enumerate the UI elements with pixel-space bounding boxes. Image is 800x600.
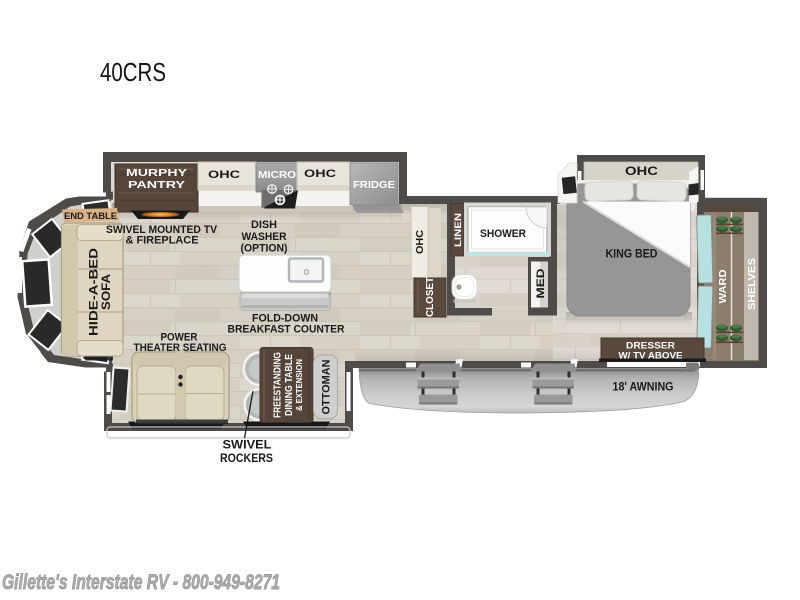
svg-text:END TABLE: END TABLE [64, 211, 117, 222]
svg-text:OHC: OHC [415, 230, 426, 254]
svg-text:SWIVEL: SWIVEL [223, 440, 272, 452]
svg-text:W/ TV ABOVE: W/ TV ABOVE [619, 351, 683, 362]
svg-text:LINEN: LINEN [453, 213, 464, 247]
svg-text:CLOSET: CLOSET [424, 276, 436, 317]
svg-text:SHELVES: SHELVES [746, 258, 758, 310]
svg-text:BREAKFAST COUNTER: BREAKFAST COUNTER [228, 324, 345, 336]
svg-text:SOFA: SOFA [99, 274, 113, 310]
svg-text:& EXTENSION: & EXTENSION [295, 359, 304, 411]
svg-text:Gillette's Interstate RV - 800: Gillette's Interstate RV - 800-949-8271 [2, 570, 280, 594]
svg-text:18' AWNING: 18' AWNING [613, 382, 674, 394]
svg-text:OHC: OHC [304, 168, 336, 180]
svg-text:MED: MED [535, 268, 547, 298]
svg-text:MICRO: MICRO [258, 169, 296, 181]
svg-text:(OPTION): (OPTION) [241, 243, 288, 255]
svg-text:WARD: WARD [717, 269, 729, 303]
svg-text:FREESTANDING: FREESTANDING [273, 352, 284, 418]
svg-text:OHC: OHC [208, 169, 240, 181]
svg-text:& FIREPLACE: & FIREPLACE [126, 235, 199, 247]
svg-text:ROCKERS: ROCKERS [220, 453, 273, 465]
svg-text:DINING TABLE: DINING TABLE [284, 354, 295, 416]
svg-text:40CRS: 40CRS [100, 57, 166, 87]
svg-text:FRIDGE: FRIDGE [353, 179, 395, 191]
svg-text:OTTOMAN: OTTOMAN [321, 359, 333, 414]
svg-text:PANTRY: PANTRY [128, 179, 185, 191]
svg-text:THEATER SEATING: THEATER SEATING [134, 342, 227, 354]
svg-text:KING BED: KING BED [606, 249, 658, 261]
svg-text:WASHER: WASHER [242, 231, 287, 243]
svg-text:MURPHY: MURPHY [126, 167, 187, 179]
svg-text:OHC: OHC [625, 166, 658, 178]
svg-text:SHOWER: SHOWER [480, 228, 526, 240]
svg-text:DISH: DISH [251, 219, 277, 231]
